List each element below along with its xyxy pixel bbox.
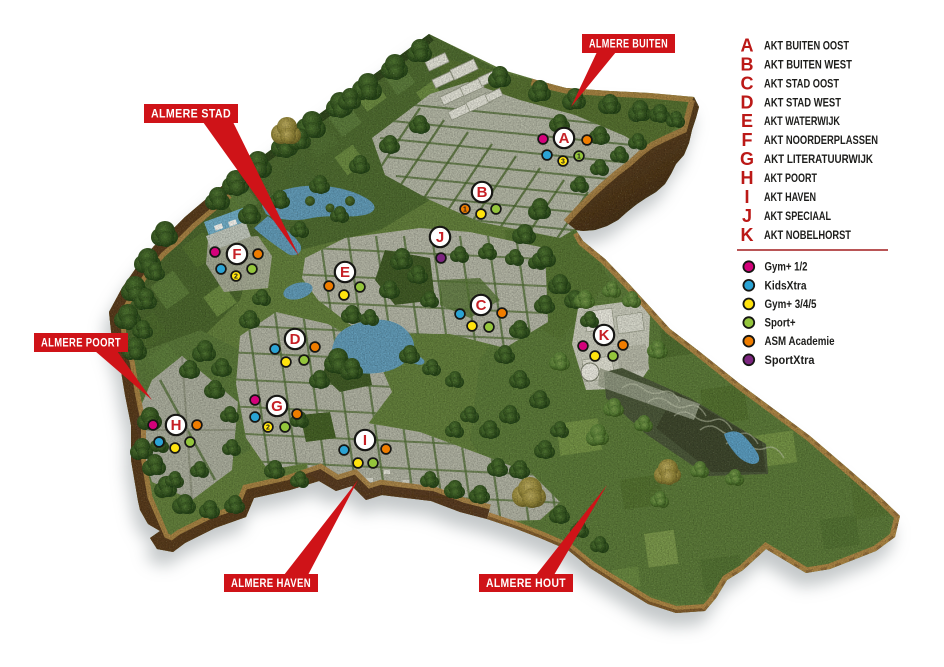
svg-text:AKT HAVEN: AKT HAVEN [764,192,816,204]
svg-text:ALMERE POORT: ALMERE POORT [41,338,121,350]
svg-text:Gym+ 1/2: Gym+ 1/2 [765,262,808,274]
svg-text:A: A [559,130,570,147]
svg-text:2: 2 [266,425,270,432]
svg-text:H: H [741,168,754,188]
svg-text:A: A [741,36,754,56]
svg-text:E: E [340,264,350,281]
svg-text:AKT SPECIAAL: AKT SPECIAAL [764,211,831,223]
svg-text:K: K [599,327,610,344]
svg-text:I: I [363,432,367,449]
svg-text:D: D [741,92,754,112]
svg-text:1: 1 [577,154,581,161]
svg-text:C: C [476,297,487,314]
svg-text:ALMERE HAVEN: ALMERE HAVEN [231,578,311,590]
svg-text:ALMERE HOUT: ALMERE HOUT [486,578,566,590]
svg-text:Sport+: Sport+ [765,318,796,330]
svg-text:E: E [741,111,753,131]
svg-text:I: I [744,187,749,207]
svg-text:AKT NOBELHORST: AKT NOBELHORST [764,230,851,242]
svg-text:AKT LITERATUURWIJK: AKT LITERATUURWIJK [764,154,874,166]
svg-text:B: B [477,184,488,201]
svg-text:ALMERE BUITEN: ALMERE BUITEN [589,39,668,51]
svg-text:3: 3 [561,159,565,166]
svg-text:1: 1 [463,207,467,214]
svg-text:AKT BUITEN OOST: AKT BUITEN OOST [764,41,849,53]
svg-text:AKT NOORDERPLASSEN: AKT NOORDERPLASSEN [764,135,878,147]
svg-text:AKT STAD OOST: AKT STAD OOST [764,78,839,90]
svg-text:K: K [741,225,754,245]
svg-text:F: F [742,130,753,150]
svg-text:AKT STAD WEST: AKT STAD WEST [764,97,841,109]
svg-text:AKT WATERWIJK: AKT WATERWIJK [764,116,841,128]
svg-text:ASM Academie: ASM Academie [765,336,835,348]
svg-text:KidsXtra: KidsXtra [765,280,808,292]
svg-text:C: C [741,73,754,93]
svg-text:AKT POORT: AKT POORT [764,173,817,185]
svg-text:B: B [741,54,754,74]
svg-text:D: D [290,331,301,348]
svg-text:G: G [740,149,754,169]
svg-text:J: J [742,206,752,226]
svg-text:SportXtra: SportXtra [765,355,816,367]
svg-text:2: 2 [234,274,238,281]
svg-text:J: J [436,229,444,246]
svg-text:ALMERE STAD: ALMERE STAD [151,109,231,121]
svg-text:Gym+ 3/4/5: Gym+ 3/4/5 [765,299,818,311]
svg-text:G: G [271,398,283,415]
svg-text:F: F [232,246,241,263]
svg-text:H: H [171,417,182,434]
svg-text:AKT BUITEN WEST: AKT BUITEN WEST [764,59,852,71]
